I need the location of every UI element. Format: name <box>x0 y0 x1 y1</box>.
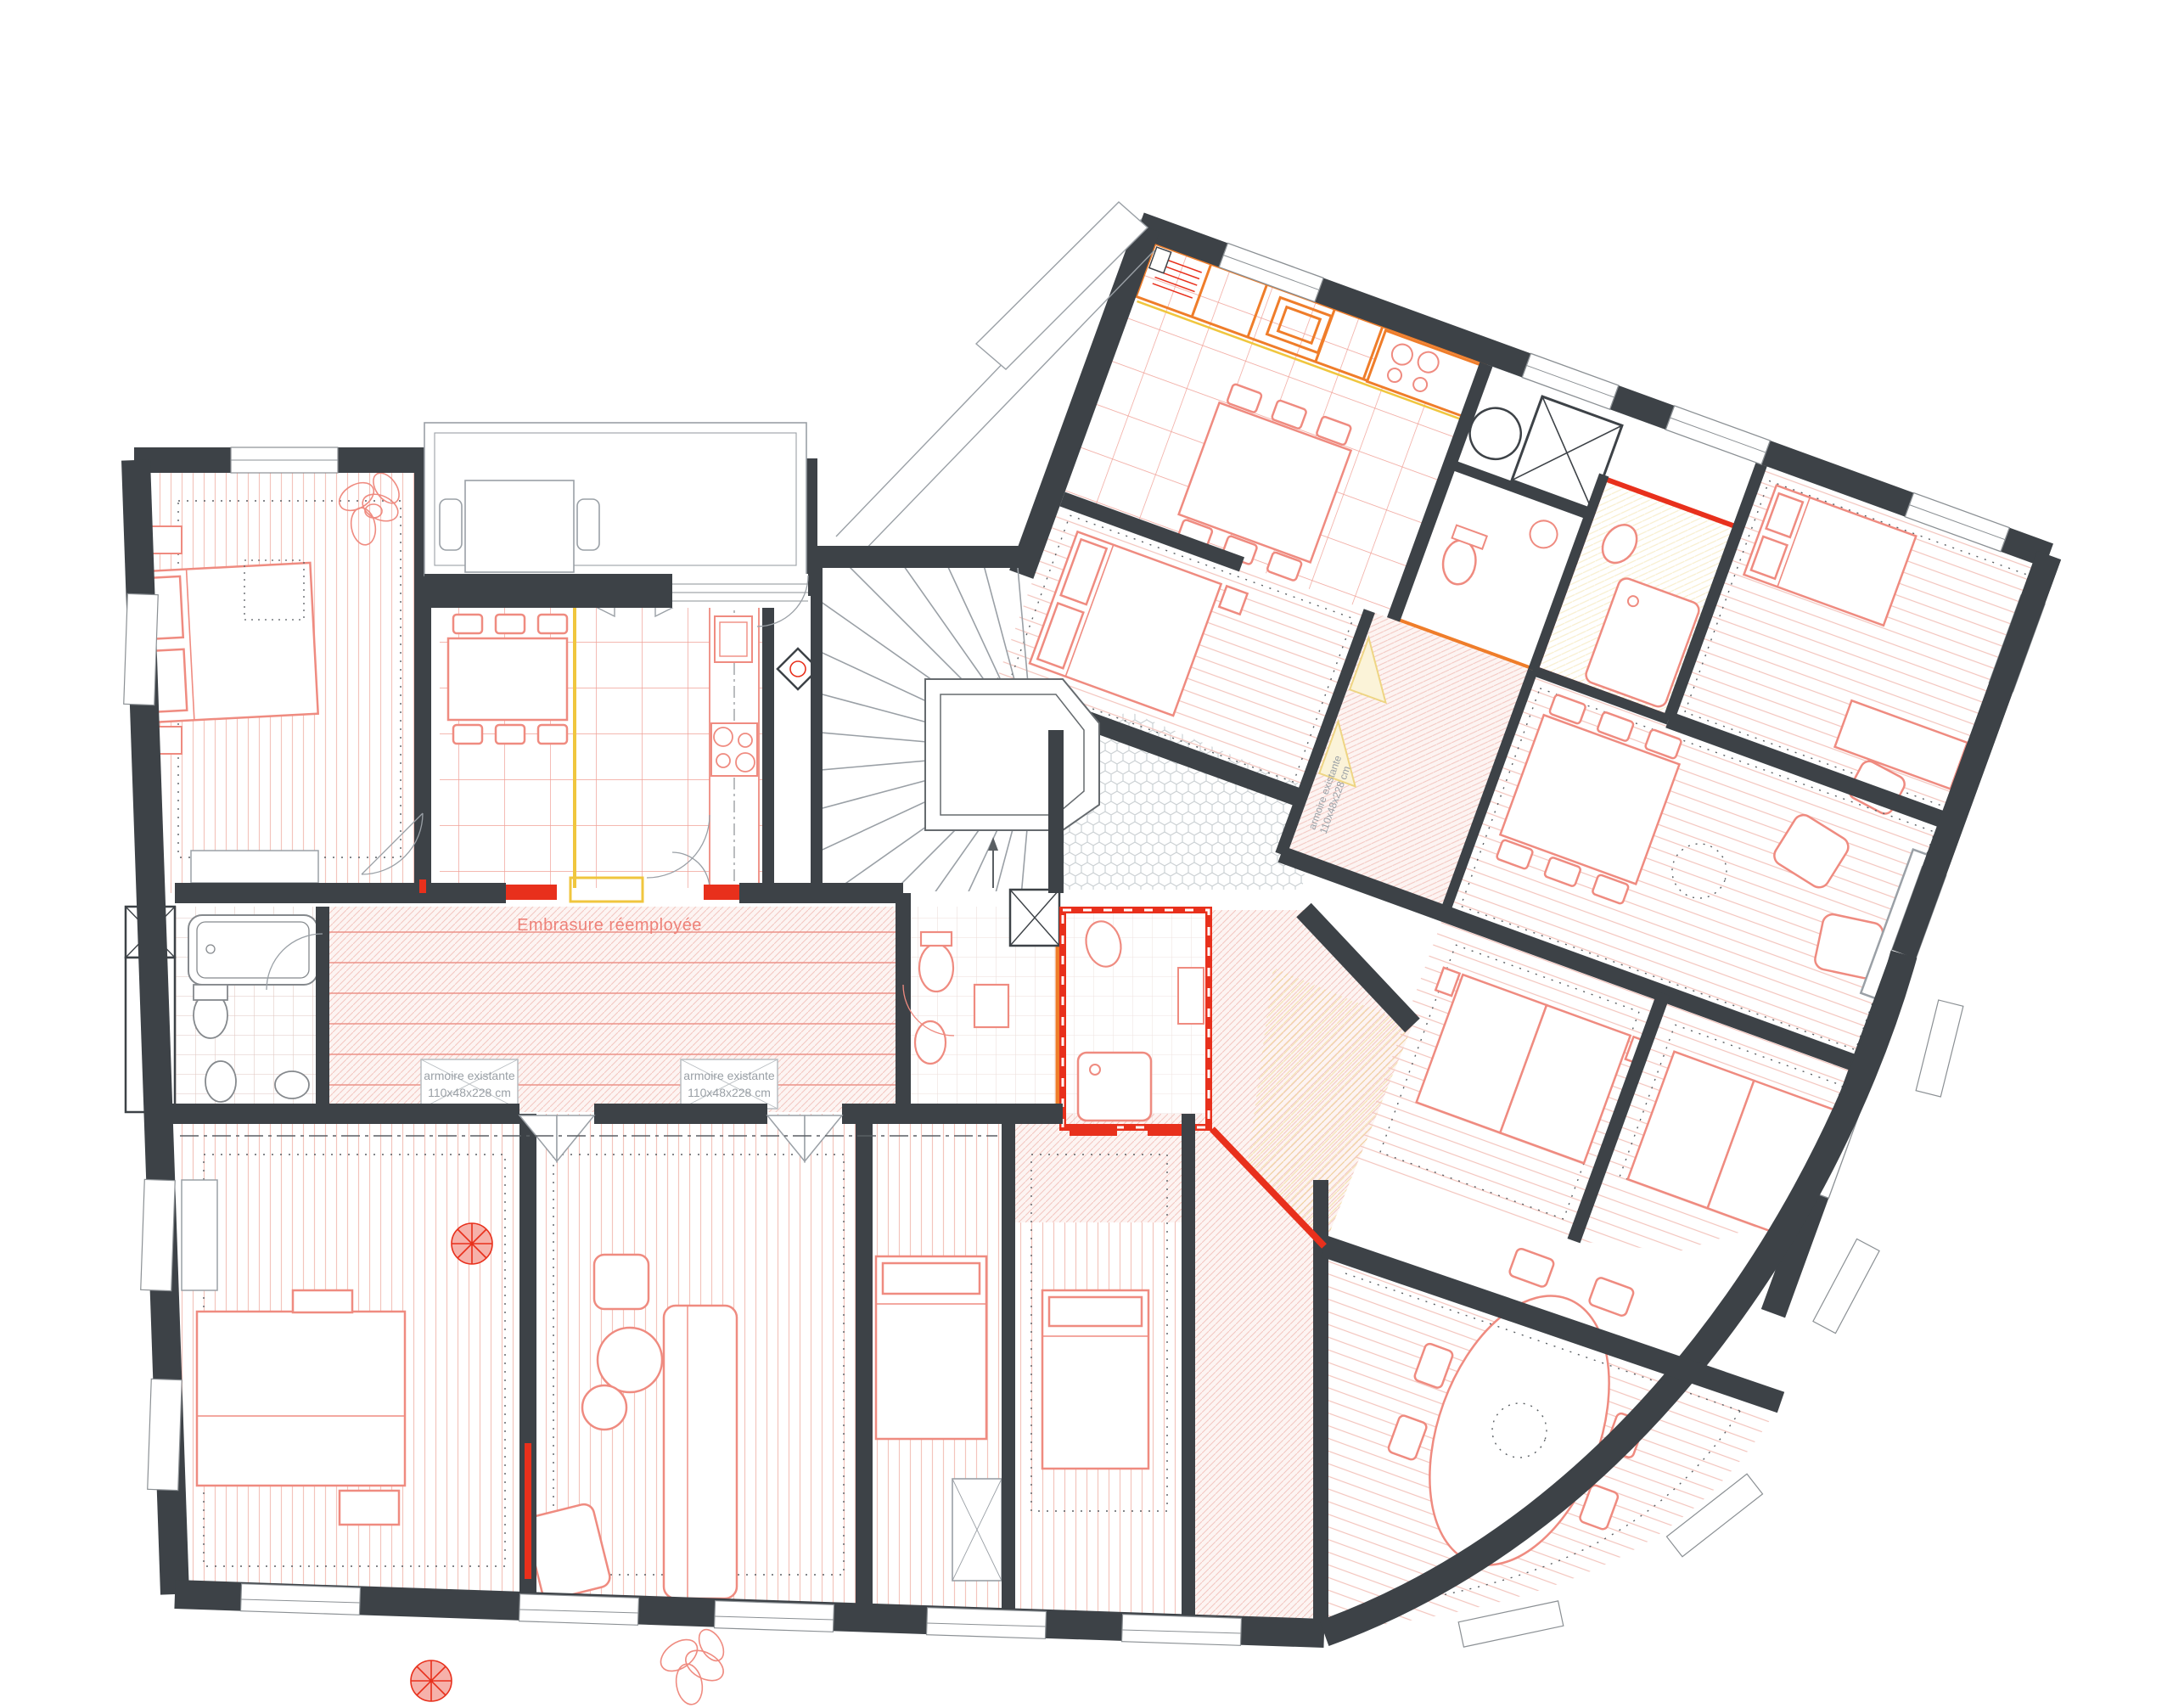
washbasin-icon <box>1526 517 1561 552</box>
embrasure-label: Embrasure réemployée <box>517 916 702 935</box>
corridor-floor <box>329 907 900 1112</box>
dining-table-icon <box>448 638 567 720</box>
armoire-2-line2: 110x48x228 cm <box>688 1086 771 1099</box>
ceiling-fan-icon <box>411 1660 452 1701</box>
ceiling-fan-icon <box>452 1223 492 1264</box>
balcony-glazing <box>672 574 808 608</box>
bidet-icon <box>205 1061 236 1102</box>
balcony-table-icon <box>465 480 574 572</box>
armoire-1-line2: 110x48x228 cm <box>428 1086 511 1099</box>
wardrobe-icon <box>952 1479 1002 1581</box>
armchair-icon <box>594 1255 649 1309</box>
desk-icon <box>197 1312 405 1486</box>
shower-room-red <box>1063 910 1209 1136</box>
washbasin-icon <box>974 985 1008 1027</box>
washbasin-icon <box>1178 968 1204 1024</box>
armoire-1-line1: armoire existante <box>424 1069 515 1082</box>
toilet-icon <box>915 1021 946 1064</box>
chair-icon <box>440 499 462 550</box>
plant-icon <box>655 1626 729 1707</box>
stair-entry-arrow-icon <box>988 837 998 888</box>
cooktop-icon <box>711 723 757 776</box>
sofa-icon <box>664 1306 737 1598</box>
duct-shaft-icon <box>1010 890 1059 946</box>
floor-plan-page: armoire existante 110x48x228 cm <box>0 0 2173 1708</box>
shower-tray-icon <box>1078 1053 1151 1121</box>
chair-icon <box>1508 1248 1555 1289</box>
balcony <box>424 423 808 608</box>
radiator-icon <box>182 1180 217 1290</box>
washbasin-icon <box>275 1071 309 1098</box>
wc-middle <box>908 890 1059 1112</box>
toilet-icon <box>919 944 953 992</box>
nightstand-icon <box>149 526 182 553</box>
coffee-table-icon <box>582 1385 626 1430</box>
chair-icon <box>1588 1277 1635 1318</box>
chair-icon <box>577 499 599 550</box>
coffee-table-icon <box>598 1328 662 1392</box>
floor-plan-drawing: armoire existante 110x48x228 cm <box>0 0 2173 1708</box>
armoire-2-line1: armoire existante <box>683 1069 775 1082</box>
red-threshold <box>1070 1124 1117 1136</box>
bench-icon <box>191 851 318 883</box>
